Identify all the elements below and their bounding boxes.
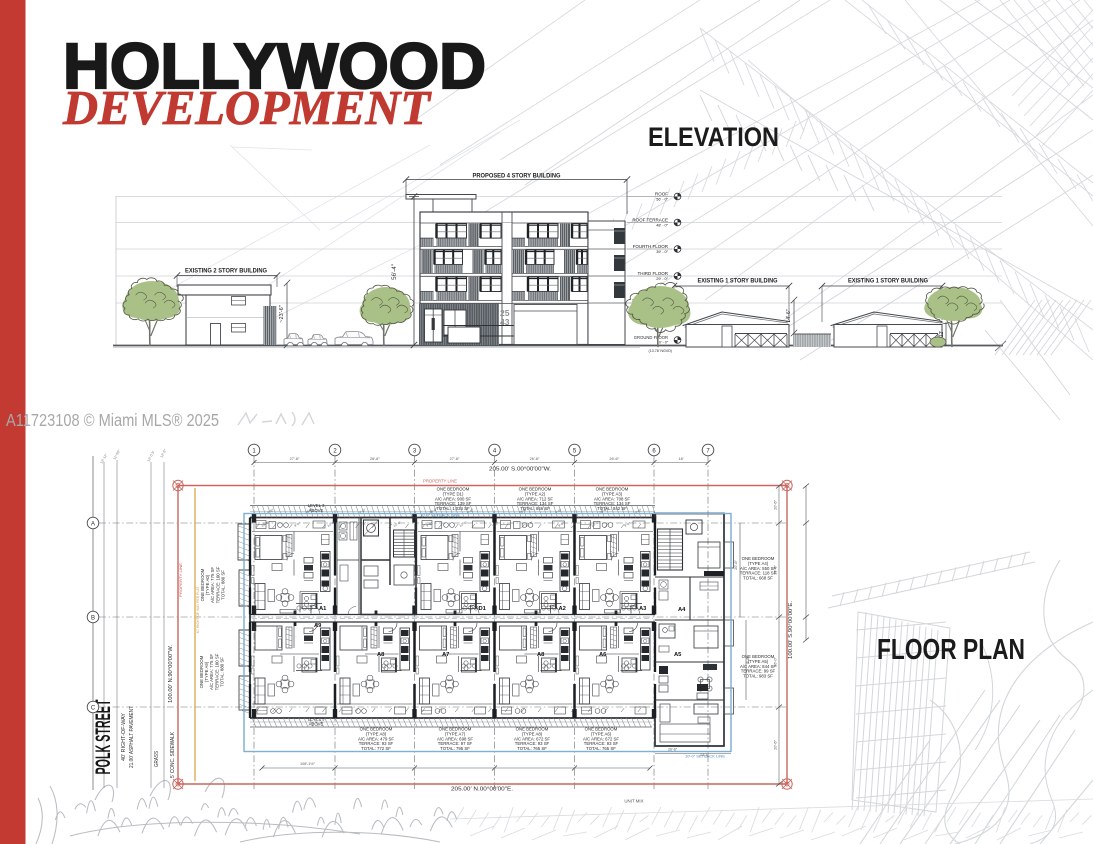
svg-text:TOTAL: 765 SF: TOTAL: 765 SF — [517, 746, 547, 751]
svg-text:DEVELOPMENT: DEVELOPMENT — [62, 80, 432, 135]
svg-text:TOTAL: 983 SF: TOTAL: 983 SF — [743, 674, 773, 679]
svg-text:14′-6″: 14′-6″ — [786, 309, 792, 322]
svg-text:43: 43 — [500, 317, 510, 327]
svg-text:TOTAL: 1,034 SF: TOTAL: 1,034 SF — [436, 506, 470, 511]
svg-text:B: B — [91, 615, 95, 621]
svg-text:TOTAL: 765 SF: TOTAL: 765 SF — [586, 746, 616, 751]
svg-text:26′-6″: 26′-6″ — [370, 457, 380, 461]
svg-text:26′-6″: 26′-6″ — [530, 457, 540, 461]
svg-text:PROPERTY LINE: PROPERTY LINE — [423, 479, 457, 484]
svg-text:TOTAL: 880 SF: TOTAL: 880 SF — [219, 657, 224, 687]
svg-text:FLOOR PLAN: FLOOR PLAN — [877, 634, 1025, 666]
svg-text:A1: A1 — [319, 606, 327, 612]
svg-text:40′ RIGHT-OF-WAY: 40′ RIGHT-OF-WAY — [121, 712, 127, 761]
svg-text:29′ - 0″: 29′ - 0″ — [656, 277, 668, 281]
svg-text:108′-1½″: 108′-1½″ — [300, 762, 316, 766]
svg-text:TOTAL: 880 SF: TOTAL: 880 SF — [220, 570, 225, 600]
svg-text:FOURTH FLOOR: FOURTH FLOOR — [633, 244, 669, 249]
svg-text:TOTAL: 772 SF: TOTAL: 772 SF — [361, 746, 391, 751]
svg-text:~23′-6″: ~23′-6″ — [279, 305, 285, 323]
svg-text:PROPOSED 4 STORY BUILDING: PROPOSED 4 STORY BUILDING — [473, 173, 561, 180]
svg-text:TOTAL: 795 SF: TOTAL: 795 SF — [440, 746, 470, 751]
svg-text:5′ CONC. SIDEWALK: 5′ CONC. SIDEWALK — [170, 731, 176, 778]
svg-text:205.00′ N.00°00′00″E.: 205.00′ N.00°00′00″E. — [451, 787, 513, 793]
svg-text:36′-6″: 36′-6″ — [774, 565, 778, 575]
svg-text:A9: A9 — [314, 623, 322, 629]
svg-text:A6: A6 — [599, 652, 607, 658]
svg-text:A3: A3 — [639, 606, 647, 612]
svg-text:100.00′ N.90°00′00″W.: 100.00′ N.90°00′00″W. — [168, 645, 174, 703]
svg-text:20′-6″: 20′-6″ — [774, 740, 778, 750]
svg-text:TOTAL: 668 SF: TOTAL: 668 SF — [743, 576, 773, 581]
svg-text:100.00′ S.90°00′00″E.: 100.00′ S.90°00′00″E. — [788, 601, 794, 659]
svg-text:A2: A2 — [559, 606, 566, 612]
svg-text:18′: 18′ — [679, 457, 684, 461]
svg-text:12′: 12′ — [939, 331, 945, 338]
svg-text:56′ - 0″: 56′ - 0″ — [656, 198, 668, 202]
svg-text:A11723108 © Miami MLS® 2025: A11723108 © Miami MLS® 2025 — [6, 410, 219, 430]
svg-text:20′-6″: 20′-6″ — [774, 500, 778, 510]
svg-text:ROOF TERRACE: ROOF TERRACE — [632, 218, 668, 223]
svg-text:D1: D1 — [479, 606, 487, 612]
svg-text:26′-6″: 26′-6″ — [609, 457, 619, 461]
svg-text:(13.78′ NGVD): (13.78′ NGVD) — [649, 349, 672, 353]
svg-text:ELEVATION: ELEVATION — [648, 122, 779, 152]
svg-text:56′-4″: 56′-4″ — [391, 263, 398, 280]
svg-text:21.00′ ASPHALT PAVEMENT: 21.00′ ASPHALT PAVEMENT — [129, 706, 135, 768]
svg-text:PROPERTY LINE: PROPERTY LINE — [179, 562, 183, 597]
svg-text:39′ - 0″: 39′ - 0″ — [656, 250, 668, 254]
svg-text:27′-6″: 27′-6″ — [290, 457, 300, 461]
svg-text:A7: A7 — [442, 652, 449, 658]
svg-text:48′ - 0″: 48′ - 0″ — [656, 224, 668, 228]
svg-text:EXISTING 1 STORY BUILDING: EXISTING 1 STORY BUILDING — [848, 278, 928, 285]
svg-text:20′-6″: 20′-6″ — [734, 560, 738, 570]
svg-text:ROOF: ROOF — [655, 192, 668, 197]
svg-text:THIRD FLOOR: THIRD FLOOR — [637, 271, 668, 276]
svg-text:0′ - 0″: 0′ - 0″ — [659, 341, 669, 345]
svg-text:ABOVE: ABOVE — [309, 722, 324, 727]
svg-text:EXISTING 2 STORY BUILDING: EXISTING 2 STORY BUILDING — [185, 268, 267, 275]
svg-text:EXISTING 1 STORY BUILDING: EXISTING 1 STORY BUILDING — [698, 278, 778, 285]
svg-text:GRASS: GRASS — [154, 750, 160, 767]
svg-text:A8: A8 — [537, 652, 545, 658]
svg-text:9′-6″: 9′-6″ — [746, 656, 750, 664]
svg-text:C: C — [91, 705, 96, 711]
svg-text:A4: A4 — [678, 607, 686, 613]
svg-text:A8: A8 — [377, 652, 385, 658]
svg-text:27′-6″: 27′-6″ — [450, 457, 460, 461]
svg-text:GROUND FLOOR: GROUND FLOOR — [634, 335, 668, 340]
svg-text:205.00′ S.00°00′00″W.: 205.00′ S.00°00′00″W. — [489, 467, 551, 473]
svg-text:A5: A5 — [674, 652, 682, 658]
svg-text:A: A — [91, 521, 95, 527]
svg-text:36′-0″: 36′-0″ — [774, 657, 778, 667]
svg-text:UNIT MIX: UNIT MIX — [624, 799, 643, 804]
